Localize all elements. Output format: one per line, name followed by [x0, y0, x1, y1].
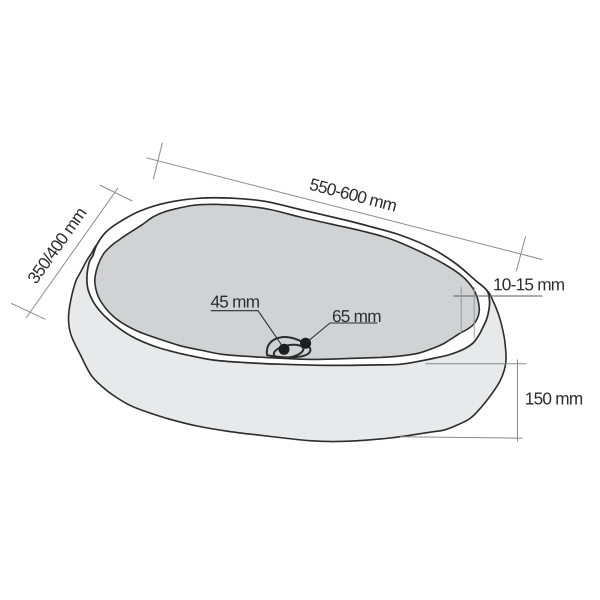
svg-text:10-15 mm: 10-15 mm: [493, 274, 565, 294]
svg-text:45 mm: 45 mm: [210, 292, 259, 312]
svg-text:150 mm: 150 mm: [525, 389, 583, 409]
svg-text:65 mm: 65 mm: [332, 306, 381, 326]
svg-text:550-600 mm: 550-600 mm: [308, 174, 400, 216]
